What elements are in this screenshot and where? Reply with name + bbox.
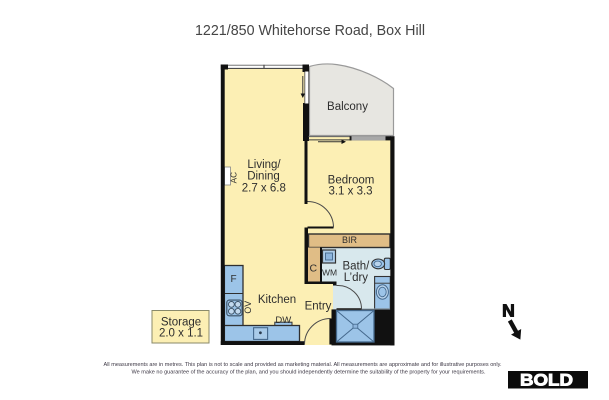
svg-text:DW: DW bbox=[275, 315, 291, 326]
svg-text:2.7 x 6.8: 2.7 x 6.8 bbox=[242, 183, 286, 195]
svg-text:Entry: Entry bbox=[305, 301, 332, 313]
svg-text:C: C bbox=[310, 263, 318, 275]
svg-text:We make no guarantee of the ac: We make no guarantee of the accuracy of … bbox=[132, 370, 486, 376]
svg-text:AC: AC bbox=[229, 172, 238, 183]
svg-text:F: F bbox=[230, 274, 236, 285]
svg-text:2.0 x 1.1: 2.0 x 1.1 bbox=[159, 328, 203, 340]
svg-text:1221/850 Whitehorse Road, Box: 1221/850 Whitehorse Road, Box Hill bbox=[195, 22, 425, 39]
svg-text:Bath/: Bath/ bbox=[342, 261, 370, 273]
svg-text:Living/: Living/ bbox=[247, 159, 281, 171]
svg-text:BOLD: BOLD bbox=[520, 372, 573, 390]
svg-text:Dining: Dining bbox=[247, 171, 280, 183]
svg-text:All measurements are in metres: All measurements are in metres. This pla… bbox=[104, 362, 502, 368]
svg-text:Kitchen: Kitchen bbox=[258, 294, 296, 306]
svg-text:L’dry: L’dry bbox=[344, 272, 369, 284]
svg-text:N: N bbox=[502, 301, 515, 321]
svg-text:OV: OV bbox=[243, 301, 253, 314]
svg-text:Balcony: Balcony bbox=[327, 101, 368, 113]
svg-text:BIR: BIR bbox=[342, 235, 358, 245]
svg-text:3.1 x 3.3: 3.1 x 3.3 bbox=[328, 186, 372, 198]
svg-text:WM: WM bbox=[322, 267, 337, 277]
